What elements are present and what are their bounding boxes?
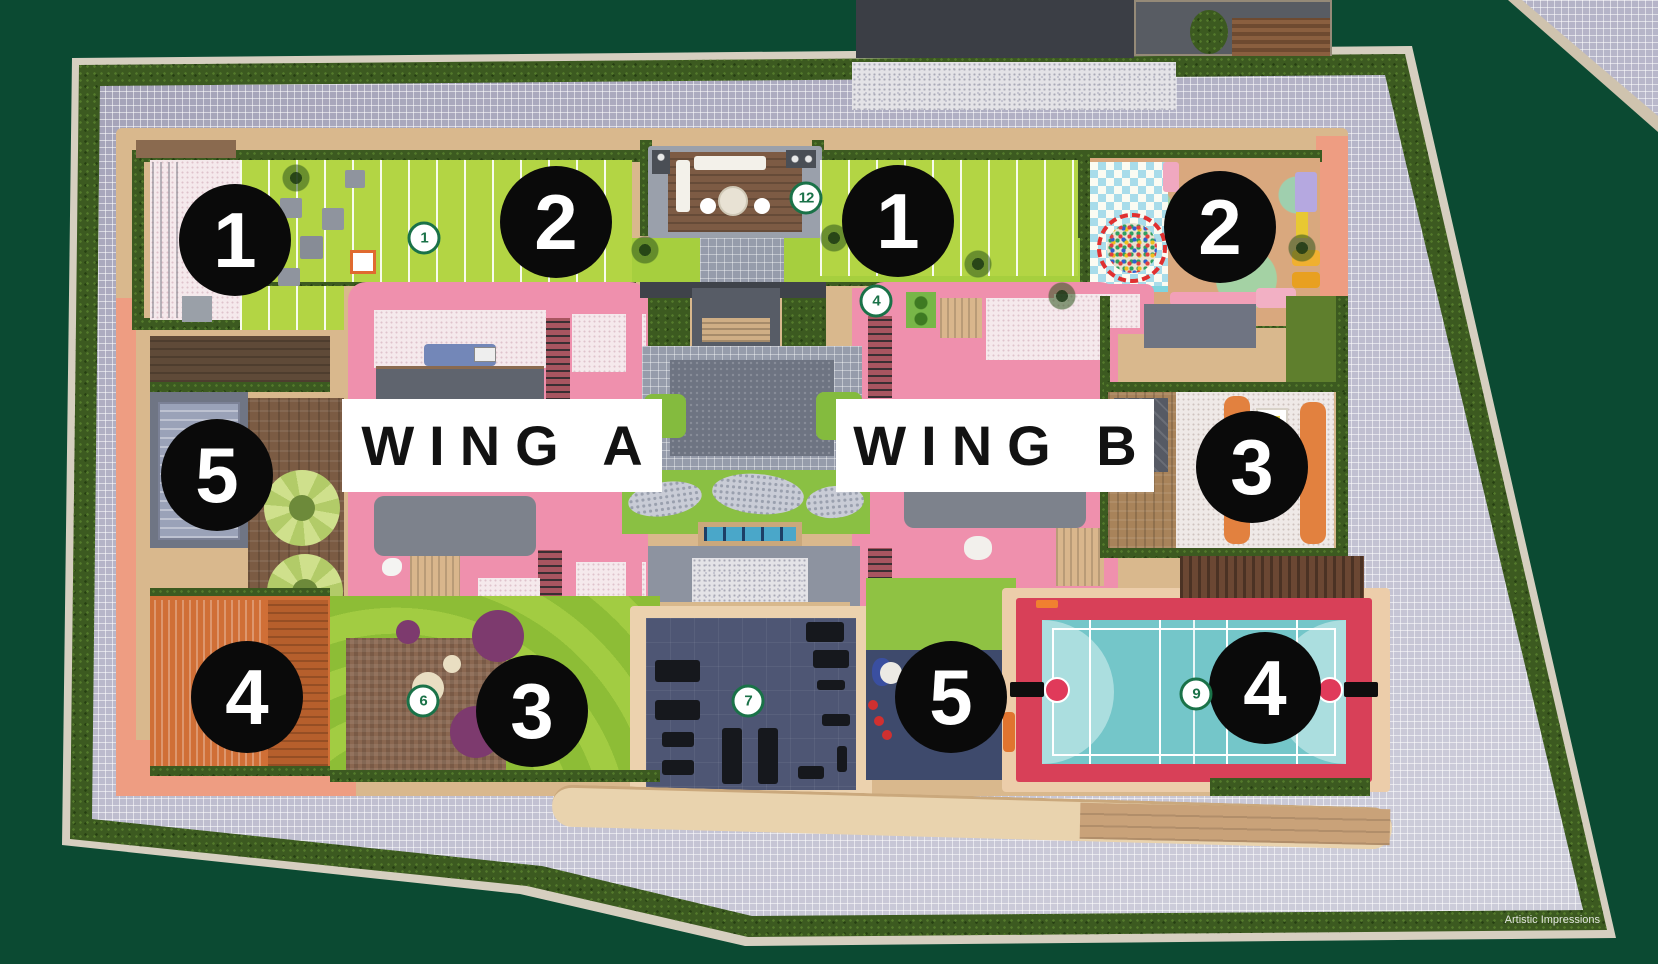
planter-core [289,495,315,521]
credit-text: Artistic Impressions [1440,914,1600,926]
wood-path [150,336,330,382]
point-marker: 6 [407,685,440,718]
amenity-marker: 5 [161,419,273,531]
hedge-strip [132,150,144,328]
gym-bench [662,732,694,747]
tree [278,160,314,196]
amenity-marker: 1 [842,165,954,277]
kids-slide [1163,162,1179,192]
ball-pit [1107,223,1157,273]
hedge-strip [1104,382,1348,392]
amenity-marker: 4 [191,641,303,753]
entry-plaza-inner [670,360,834,456]
roof-slab [1144,304,1256,348]
site-plan: 1 2 1 2 5 3 4 3 5 4 1 12 4 6 7 9 WING A … [0,0,1658,964]
treadmill [758,728,778,784]
toy-car [1292,272,1320,288]
wing-b-wood-block [940,298,982,338]
terrace-wall [136,140,236,158]
flower-planter [264,470,340,546]
round-seat [396,620,420,644]
amenity-marker: 3 [1196,411,1308,523]
cable-machine [806,622,844,642]
dumbbell-rack [798,766,824,779]
entrance-canopy [856,0,1134,58]
weight-station [822,714,850,726]
round-seat [443,655,461,673]
outdoor-sofa [694,156,766,170]
point-marker: 9 [1180,678,1213,711]
stepping-stone [300,236,323,259]
hedge-strip [1210,778,1370,796]
gym-bench [662,760,694,775]
gravel-strip [852,62,1176,110]
south-plaza-stone [692,558,808,604]
tree [1284,230,1320,266]
point-marker: 4 [860,285,893,318]
hedge-strip [1336,296,1348,556]
weight-rack [837,746,847,772]
treadmill [655,660,700,682]
play-ball [868,700,878,710]
entry-step [702,318,770,342]
tree [627,232,663,268]
stepping-stone [345,170,365,188]
wing-a-roof-slab [376,366,544,402]
court-line [1089,620,1091,764]
retaining-wall [1080,803,1391,845]
wing-a-stairs [546,318,570,400]
wing-b-label: WING B [836,399,1154,492]
play-ball [874,716,884,726]
tree [960,246,996,282]
wing-b-stairs [868,316,892,398]
hedge-strip [150,766,330,776]
amenity-marker: 2 [1164,171,1276,283]
statue [964,536,992,560]
entrance-steps [1232,18,1330,56]
point-marker: 12 [790,182,823,215]
treadmill [722,728,742,784]
basketball-hoop-post [1344,682,1378,697]
round-seat [472,610,524,662]
basketball-key [1044,677,1070,703]
pergola-roof [1180,556,1364,598]
court-side-bench [1003,712,1015,752]
outdoor-sofa [676,160,690,212]
cable-machine [813,650,849,668]
terrace-decking [152,162,178,318]
point-marker: 1 [408,222,441,255]
point-marker: 7 [732,685,765,718]
hedge-strip [150,382,330,392]
utility-box [906,292,936,328]
basketball-hoop-post [1010,682,1044,697]
terrace-slab [182,296,212,322]
amenity-marker: 1 [179,184,291,296]
amenity-marker: 2 [500,166,612,278]
entrance-bush [1190,10,1228,54]
buggy [474,347,496,362]
barbecue-counter [786,150,816,168]
dog-statue [382,558,402,576]
wing-b-deck [1056,528,1104,586]
fountain-jets [704,527,796,541]
deck-table [718,186,748,216]
platform-trim-right [1316,136,1348,322]
tree [1044,278,1080,314]
amenity-marker: 5 [895,641,1007,753]
deck-path [700,238,784,282]
hedge-strip [330,770,660,782]
climbing-frame [1295,172,1317,212]
weight-station [817,680,845,690]
wing-a-label: WING A [342,399,662,492]
amenity-marker: 4 [1209,632,1321,744]
deck-chair [700,198,716,214]
lawn-west-extension [240,286,344,330]
play-ball [882,730,892,740]
court-line [1159,620,1161,764]
platform-trim-left [116,298,136,758]
court-cone [1036,600,1058,608]
barbecue-counter [652,150,670,174]
game-board [350,250,376,274]
treadmill [655,700,700,720]
deck-chair [754,198,770,214]
amenity-marker: 3 [476,655,588,767]
stepping-stone [322,208,344,230]
wing-a-roof-slab [374,496,536,556]
